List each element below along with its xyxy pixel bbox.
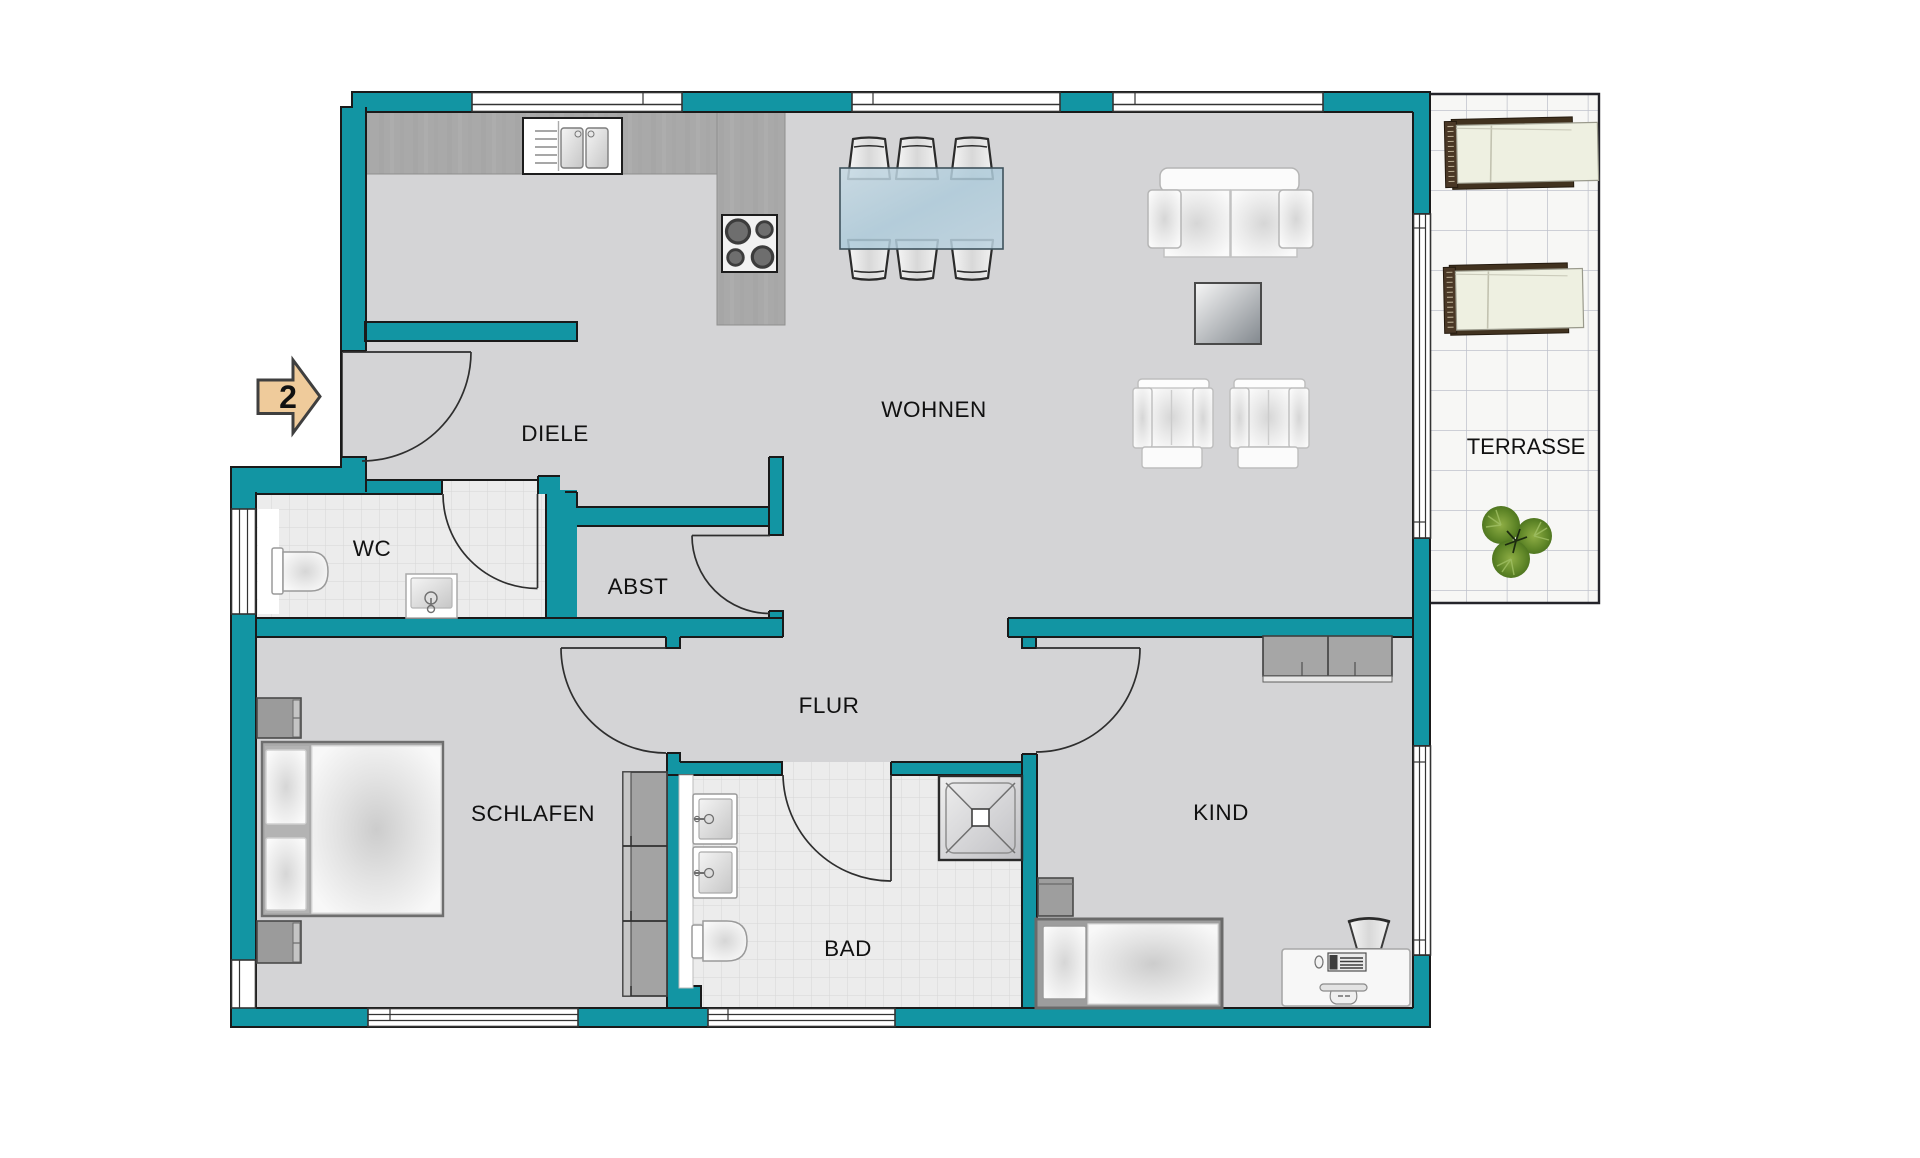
svg-text:KIND: KIND [1193, 800, 1249, 825]
svg-text:DIELE: DIELE [521, 421, 589, 446]
svg-text:ABST: ABST [608, 574, 669, 599]
svg-text:BAD: BAD [824, 936, 872, 961]
svg-text:TERRASSE: TERRASSE [1467, 434, 1586, 459]
svg-text:WC: WC [353, 536, 392, 561]
svg-text:WOHNEN: WOHNEN [881, 397, 987, 422]
svg-text:SCHLAFEN: SCHLAFEN [471, 801, 595, 826]
svg-text:2: 2 [279, 379, 297, 415]
svg-text:FLUR: FLUR [799, 693, 860, 718]
